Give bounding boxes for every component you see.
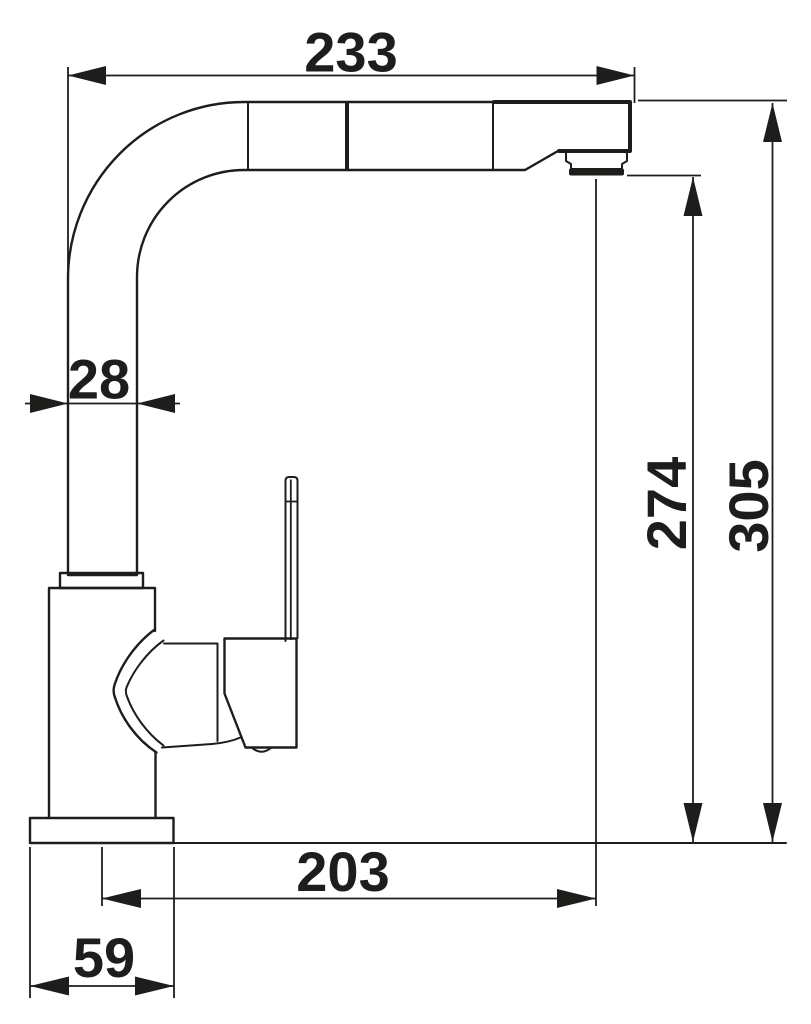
aerator-band [569, 169, 624, 176]
dim-label-59: 59 [73, 926, 135, 989]
handle-base [225, 639, 297, 748]
arrowhead-bottom [684, 803, 703, 842]
arrowhead-right [135, 977, 174, 996]
dim-label-203: 203 [296, 840, 389, 903]
dimension-spout-reach-top: 233 [68, 21, 635, 281]
spout-body-outline [68, 102, 630, 575]
base-flange [30, 818, 174, 843]
arrowhead-left [102, 889, 141, 908]
arrowhead-top [684, 177, 703, 216]
arrowhead-left [68, 66, 106, 85]
dimension-outlet-reach: 203 [102, 179, 596, 908]
arrowhead-left [30, 394, 68, 413]
arrowhead-right [597, 66, 635, 85]
faucet-dimension-drawing: 233 28 274 305 [0, 0, 811, 1024]
dimension-outlet-height: 274 [627, 176, 703, 843]
arrowhead-bottom [763, 803, 782, 842]
body-column [49, 588, 156, 818]
arrowhead-left [30, 977, 69, 996]
arrowhead-top [763, 103, 782, 142]
aerator-outline [566, 151, 627, 169]
cartridge-housing [162, 644, 241, 748]
arrowhead-right [557, 889, 596, 908]
dim-label-274: 274 [635, 457, 698, 550]
technical-drawing-svg: 233 28 274 305 [0, 0, 811, 1024]
dimension-tube-width: 28 [25, 348, 180, 414]
dim-label-305: 305 [717, 459, 780, 552]
arrowhead-right [137, 394, 175, 413]
spray-head-accent [494, 102, 630, 151]
dim-label-233: 233 [304, 21, 397, 84]
dim-label-28: 28 [68, 348, 130, 411]
